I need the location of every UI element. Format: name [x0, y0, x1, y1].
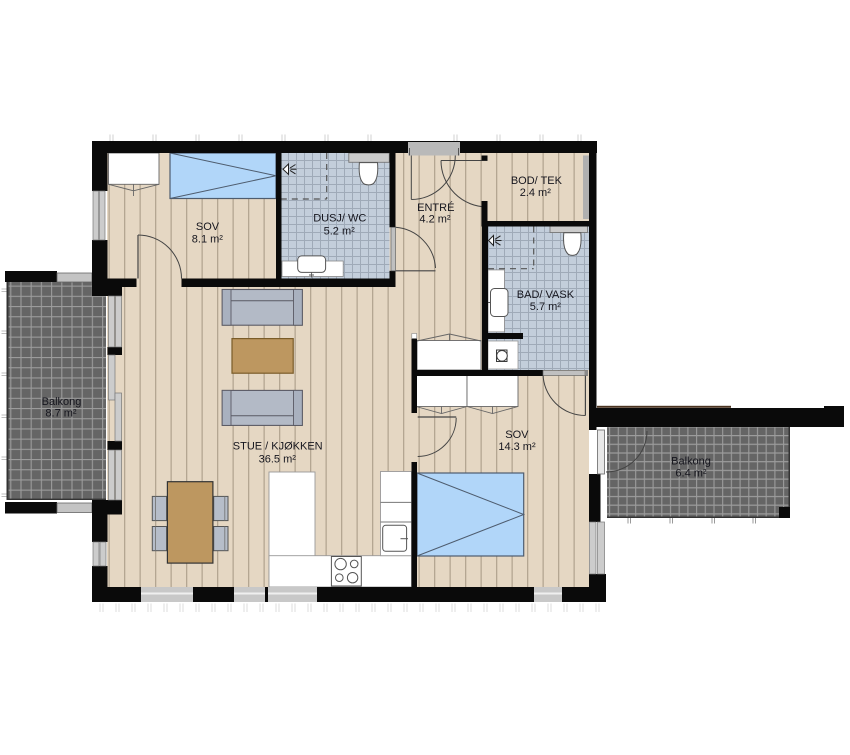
svg-text:4.2 m²: 4.2 m² — [419, 213, 451, 225]
svg-text:36.5 m²: 36.5 m² — [259, 453, 297, 465]
svg-text:DUSJ/ WC: DUSJ/ WC — [313, 213, 366, 225]
svg-text:SOV: SOV — [196, 221, 220, 233]
svg-text:5.2 m²: 5.2 m² — [324, 226, 356, 238]
svg-text:SOV: SOV — [505, 429, 529, 441]
svg-text:8.1 m²: 8.1 m² — [192, 233, 224, 245]
svg-text:ENTRÉ: ENTRÉ — [417, 201, 454, 214]
svg-text:STUE / KJØKKEN: STUE / KJØKKEN — [233, 440, 323, 452]
svg-text:6.4 m²: 6.4 m² — [675, 468, 707, 480]
svg-text:BAD/ VASK: BAD/ VASK — [517, 289, 575, 301]
svg-text:BOD/ TEK: BOD/ TEK — [511, 175, 563, 187]
svg-text:14.3 m²: 14.3 m² — [498, 441, 536, 453]
svg-text:5.7 m²: 5.7 m² — [530, 301, 562, 313]
svg-text:2.4 m²: 2.4 m² — [520, 187, 552, 199]
svg-text:Balkong: Balkong — [671, 456, 711, 468]
svg-text:8.7 m²: 8.7 m² — [45, 408, 77, 420]
svg-text:Balkong: Balkong — [42, 396, 82, 408]
